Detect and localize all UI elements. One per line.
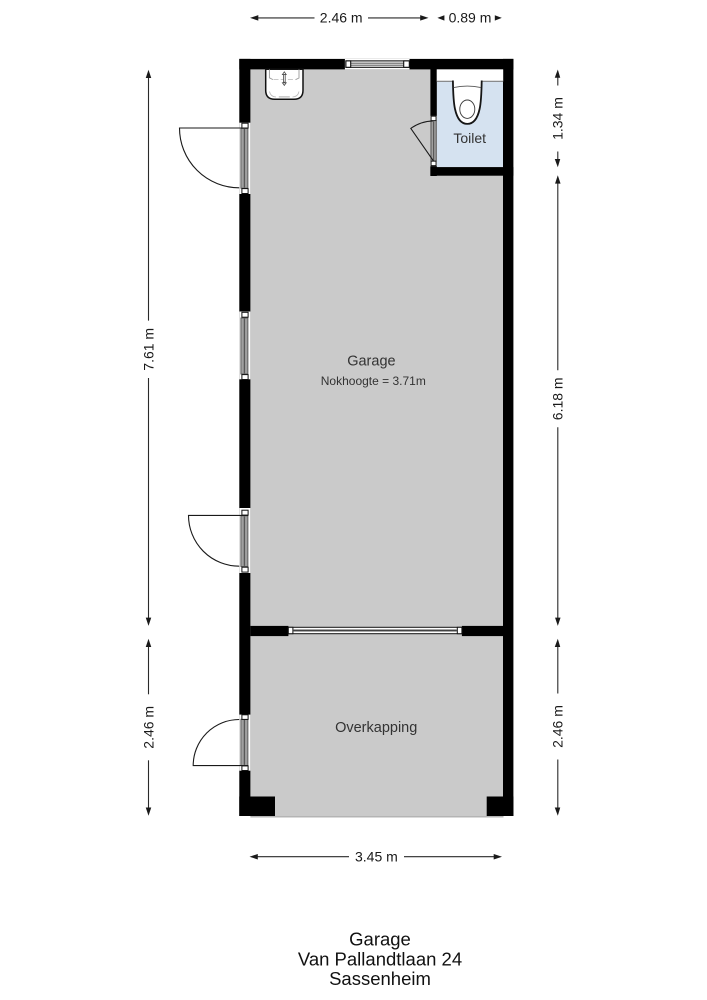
svg-text:2.46 m: 2.46 m [320, 10, 363, 26]
svg-text:3.45 m: 3.45 m [355, 849, 398, 865]
svg-text:6.18 m: 6.18 m [550, 377, 566, 420]
svg-text:2.46 m: 2.46 m [140, 706, 156, 749]
svg-text:Van Pallandtlaan 24: Van Pallandtlaan 24 [298, 948, 462, 969]
svg-text:2.46 m: 2.46 m [550, 705, 566, 748]
svg-text:Garage: Garage [347, 354, 395, 370]
svg-text:0.89 m: 0.89 m [449, 10, 492, 26]
svg-text:Toilet: Toilet [453, 130, 486, 146]
svg-text:7.61 m: 7.61 m [140, 328, 156, 371]
svg-text:Nokhoogte = 3.71m: Nokhoogte = 3.71m [321, 374, 426, 388]
svg-text:Sassenheim: Sassenheim [329, 968, 431, 989]
svg-text:1.34 m: 1.34 m [550, 97, 566, 140]
svg-text:Garage: Garage [349, 929, 411, 950]
svg-text:Overkapping: Overkapping [335, 720, 417, 736]
